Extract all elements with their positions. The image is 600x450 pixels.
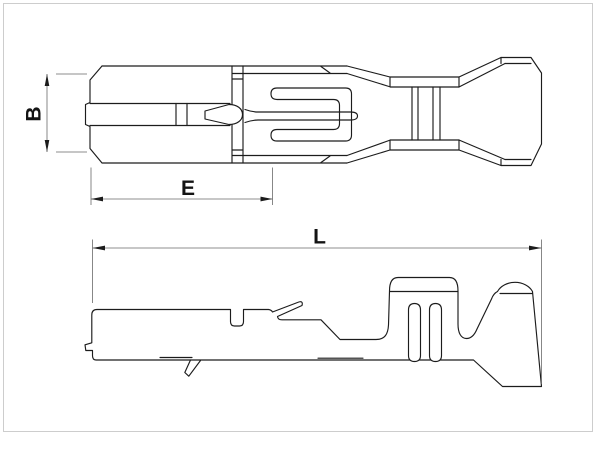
terminal-drawing: B E L bbox=[0, 0, 600, 450]
barrel-transition-left bbox=[347, 66, 390, 163]
dimension-l-extension-lines bbox=[93, 240, 542, 385]
dimension-b: B bbox=[23, 74, 88, 152]
bent-tab bbox=[185, 360, 201, 376]
edge-cut-marks bbox=[321, 67, 330, 163]
barrel-transition-right bbox=[459, 58, 505, 166]
dimension-l-arrow-left bbox=[93, 246, 106, 251]
contact-tongue bbox=[245, 110, 358, 123]
drawing-canvas: B E L bbox=[0, 0, 600, 450]
spring-clamp bbox=[271, 88, 352, 141]
sheet-edge-inner-lines bbox=[243, 74, 347, 156]
dimension-b-extension-lines bbox=[56, 74, 87, 152]
dimension-e-arrow-left bbox=[91, 197, 103, 202]
dimension-b-arrow-up bbox=[45, 74, 50, 86]
dimension-e-label: E bbox=[181, 177, 195, 200]
crimp-slot-right bbox=[430, 304, 442, 362]
contact-tip bbox=[205, 105, 243, 125]
terminal-top-view bbox=[86, 58, 542, 166]
wire-barrel-seam-lines bbox=[412, 87, 440, 140]
wire-barrel-top-rail bbox=[390, 77, 459, 87]
dimension-e: E bbox=[91, 168, 273, 206]
canvas-border bbox=[4, 4, 593, 432]
dimension-l-label: L bbox=[313, 226, 326, 249]
terminal-side-view bbox=[85, 278, 542, 387]
dimension-l-arrow-right bbox=[529, 246, 542, 251]
dimension-b-arrow-down bbox=[45, 140, 50, 152]
insulation-crimp-top-view bbox=[501, 58, 542, 166]
side-profile-outline bbox=[85, 278, 542, 387]
bottom-seam-lines bbox=[160, 358, 363, 359]
slot-cross-lines bbox=[176, 104, 187, 126]
dimension-b-label: B bbox=[23, 106, 46, 121]
dimension-e-arrow-right bbox=[261, 197, 273, 202]
crimp-slot-left bbox=[409, 304, 421, 362]
wire-barrel-bottom-rail bbox=[390, 140, 459, 150]
